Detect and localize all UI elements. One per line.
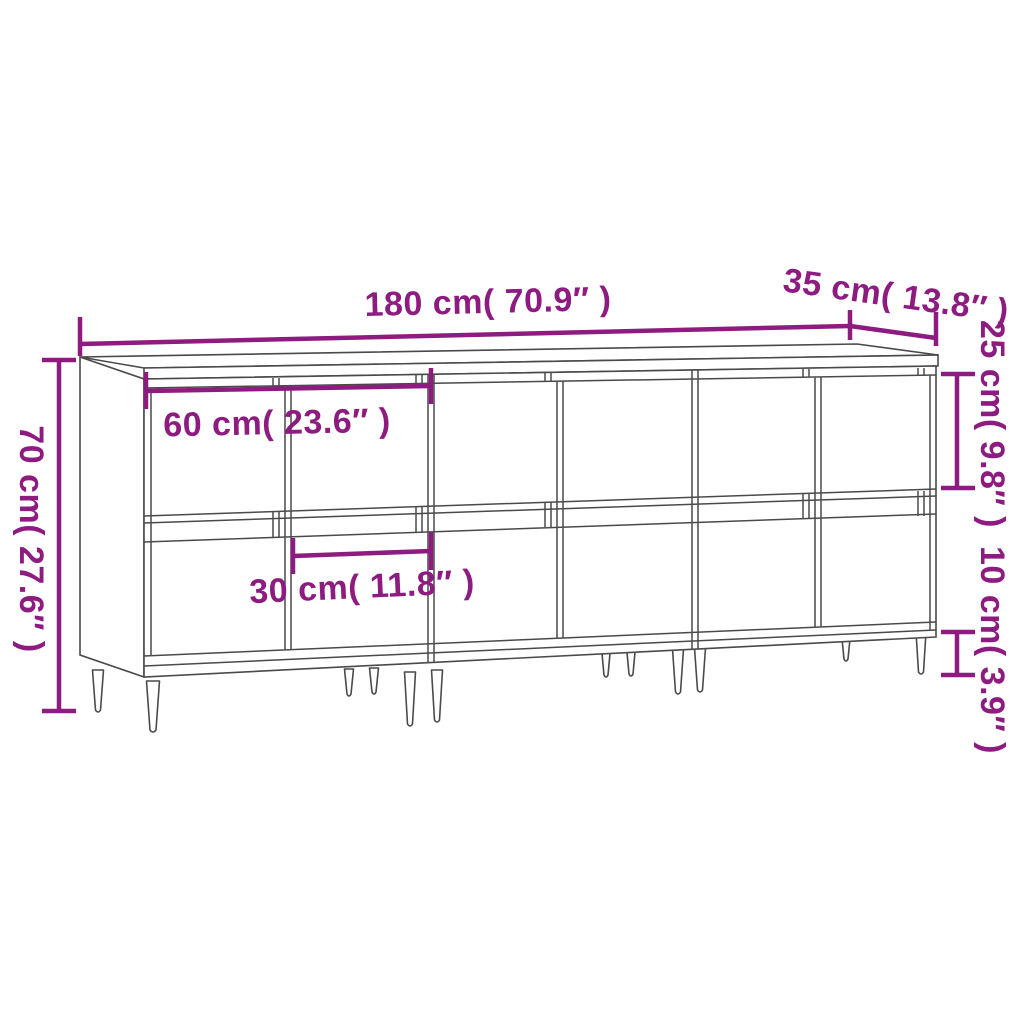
dim-line-upper-door-height (941, 374, 975, 488)
dimension-label-upper-door-height: 25 cm( 9.8″ ) (975, 320, 1009, 528)
dimension-label-leg-height: 10 cm( 3.9″ ) (975, 546, 1009, 754)
dim-line-leg-height (941, 632, 975, 675)
product-dimension-diagram: 180 cm( 70.9″ ) 35 cm( 13.8″ ) 60 cm( 23… (0, 0, 1024, 1024)
sideboard-line-drawing (0, 0, 1024, 1024)
dimension-label-total-height: 70 cm( 27.6″ ) (14, 425, 48, 652)
cabinet-left-panel (80, 357, 144, 677)
dimension-label-total-width: 180 cm( 70.9″ ) (364, 282, 612, 322)
dimension-label-unit-width: 60 cm( 23.6″ ) (163, 404, 391, 443)
